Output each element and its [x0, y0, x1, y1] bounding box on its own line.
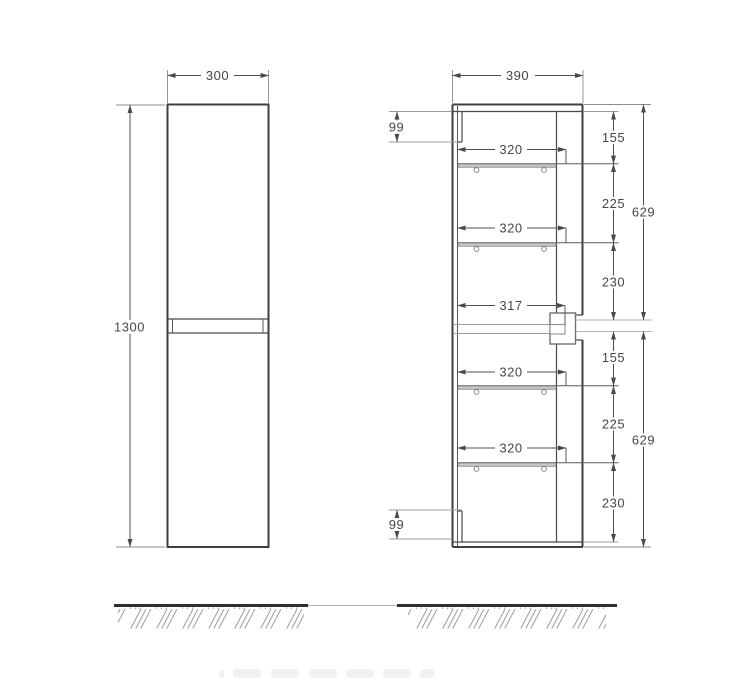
- dim-label-rail-top: 99: [389, 120, 404, 135]
- dim-label-mid-depth: 317: [499, 298, 522, 313]
- dim-shelf2-depth: 320: [458, 221, 567, 243]
- dim-label-front-height: 1300: [114, 320, 145, 335]
- dim-top-total-629: 629: [628, 105, 659, 321]
- dim-label-front-width: 300: [206, 68, 229, 83]
- shelf-4: [458, 463, 619, 472]
- dim-label-bottom-155: 155: [602, 350, 625, 365]
- dim-label-shelf3-depth: 320: [499, 365, 522, 380]
- dim-label-bottom-230: 230: [602, 496, 625, 511]
- dim-rail-bottom: 99: [385, 510, 409, 539]
- dim-side-depth: 390: [453, 68, 584, 103]
- dim-label-shelf1-depth: 320: [499, 142, 522, 157]
- mid-divider: [453, 325, 550, 334]
- dim-shelf3-depth: 320: [458, 365, 567, 386]
- dim-bottom-155: 155: [598, 332, 629, 386]
- shelf-2: [458, 243, 619, 252]
- dim-front-width: 300: [168, 68, 269, 103]
- ground-left: [114, 606, 308, 629]
- side-view: [389, 105, 652, 548]
- dim-label-top-225: 225: [602, 196, 625, 211]
- front-cabinet-outline: [168, 105, 269, 548]
- front-door-gap-handle: [168, 319, 268, 333]
- technical-drawing-canvas: 300 1300: [0, 0, 750, 682]
- shelf-1: [458, 164, 619, 173]
- dim-bottom-230: 230: [598, 463, 629, 542]
- dim-shelf1-depth: 320: [458, 142, 567, 164]
- ground-hatch-left: [118, 608, 304, 629]
- faint-watermark: [219, 669, 434, 678]
- dim-label-top-155: 155: [602, 130, 625, 145]
- handle-profile: [550, 313, 576, 344]
- dim-mid-depth: 317: [458, 298, 566, 325]
- dim-bottom-225: 225: [598, 386, 629, 463]
- door-section-lower: [557, 340, 583, 542]
- dim-shelf4-depth: 320: [458, 441, 567, 463]
- dim-label-bottom-225: 225: [602, 417, 625, 432]
- ground-hatch-right: [408, 608, 606, 629]
- door-section-upper: [557, 112, 583, 316]
- ground-right: [397, 606, 617, 629]
- dim-label-side-depth: 390: [506, 68, 529, 83]
- front-view: [168, 105, 269, 548]
- dim-label-top-total: 629: [632, 205, 655, 220]
- dim-label-bottom-total: 629: [632, 433, 655, 448]
- dim-top-155: 155: [598, 112, 629, 164]
- wall-rail-top: [458, 112, 462, 143]
- wall-rail-bottom: [458, 511, 462, 542]
- dim-front-height: 1300: [108, 105, 165, 547]
- dim-label-top-230: 230: [602, 275, 625, 290]
- cabinet-drawing: 300 1300: [0, 0, 750, 682]
- dim-rail-top: 99: [385, 112, 409, 143]
- dim-top-225: 225: [598, 164, 629, 243]
- dim-label-shelf4-depth: 320: [499, 441, 522, 456]
- dim-top-230: 230: [598, 243, 629, 320]
- dim-bottom-total-629: 629: [628, 332, 659, 548]
- dim-label-shelf2-depth: 320: [499, 221, 522, 236]
- side-extension-lines: [389, 105, 652, 548]
- dim-label-rail-bottom: 99: [389, 517, 404, 532]
- shelf-3: [458, 386, 619, 395]
